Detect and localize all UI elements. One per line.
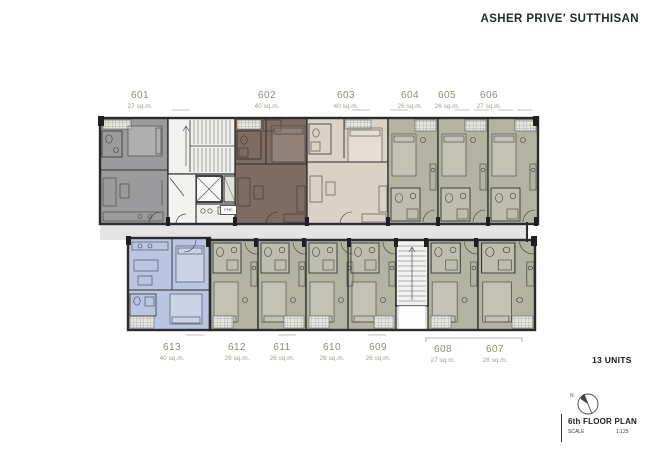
unit-612-number: 612 bbox=[225, 343, 250, 353]
unit-610-area: 26 sq.m. bbox=[320, 355, 345, 362]
unit-609-area: 26 sq.m. bbox=[366, 355, 391, 362]
unit-label-608: 608 27 sq.m. bbox=[431, 345, 456, 364]
unit-label-610: 610 26 sq.m. bbox=[320, 343, 345, 362]
unit-611-number: 611 bbox=[270, 343, 295, 353]
unit-608-number: 608 bbox=[431, 345, 456, 355]
unit-601-number: 601 bbox=[128, 91, 153, 101]
unit-612-area: 26 sq.m. bbox=[225, 355, 250, 362]
unit-label-605: 605 26 sq.m. bbox=[435, 91, 460, 110]
unit-label-603: 603 40 sq.m. bbox=[334, 91, 359, 110]
unit-label-601: 601 27 sq.m. bbox=[128, 91, 153, 110]
unit-603-number: 603 bbox=[334, 91, 359, 101]
elevator bbox=[196, 176, 235, 202]
unit-label-607: 607 28 sq.m. bbox=[483, 345, 508, 364]
secondary-stair bbox=[396, 240, 428, 330]
units-count: 13 UNITS bbox=[592, 355, 632, 365]
unit-607-number: 607 bbox=[483, 345, 508, 355]
unit-602-area: 40 sq.m. bbox=[255, 103, 280, 110]
unit-608-area: 27 sq.m. bbox=[431, 357, 456, 364]
unit-609-number: 609 bbox=[366, 343, 391, 353]
north-arrow-icon bbox=[578, 394, 598, 414]
unit-606-area: 27 sq.m. bbox=[477, 103, 502, 110]
unit-label-612: 612 26 sq.m. bbox=[225, 343, 250, 362]
unit-604-area: 26 sq.m. bbox=[398, 103, 423, 110]
unit-613-number: 613 bbox=[160, 343, 185, 353]
title-block: 6th FLOOR PLAN SCALE 1:125 bbox=[561, 414, 653, 442]
unit-610-number: 610 bbox=[320, 343, 345, 353]
scale-label: SCALE bbox=[568, 429, 584, 435]
north-label: N bbox=[570, 393, 574, 399]
scale-row: SCALE 1:125 bbox=[568, 429, 653, 435]
unit-label-602: 602 40 sq.m. bbox=[255, 91, 280, 110]
unit-604-number: 604 bbox=[398, 91, 423, 101]
scale-value: 1:125 bbox=[616, 429, 629, 435]
main-stair bbox=[168, 118, 235, 174]
unit-613-area: 40 sq.m. bbox=[160, 355, 185, 362]
unit-601-area: 27 sq.m. bbox=[128, 103, 153, 110]
unit-label-606: 606 27 sq.m. bbox=[477, 91, 502, 110]
unit-606-number: 606 bbox=[477, 91, 502, 101]
unit-611-area: 26 sq.m. bbox=[270, 355, 295, 362]
fire-hose-cabinet-label: FHC bbox=[220, 205, 237, 215]
unit-603-area: 40 sq.m. bbox=[334, 103, 359, 110]
floor-plan-page: ASHER PRIVE' SUTTHISAN 601 27 sq.m. 602 … bbox=[0, 0, 660, 467]
floor-plan-title: 6th FLOOR PLAN bbox=[568, 417, 653, 426]
project-title: ASHER PRIVE' SUTTHISAN bbox=[481, 13, 640, 25]
unit-label-604: 604 26 sq.m. bbox=[398, 91, 423, 110]
floor-plan-drawing bbox=[0, 0, 660, 467]
unit-605-number: 605 bbox=[435, 91, 460, 101]
unit-602-number: 602 bbox=[255, 91, 280, 101]
unit-607-area: 28 sq.m. bbox=[483, 357, 508, 364]
unit-label-613: 613 40 sq.m. bbox=[160, 343, 185, 362]
unit-605-area: 26 sq.m. bbox=[435, 103, 460, 110]
unit-label-611: 611 26 sq.m. bbox=[270, 343, 295, 362]
unit-label-609: 609 26 sq.m. bbox=[366, 343, 391, 362]
